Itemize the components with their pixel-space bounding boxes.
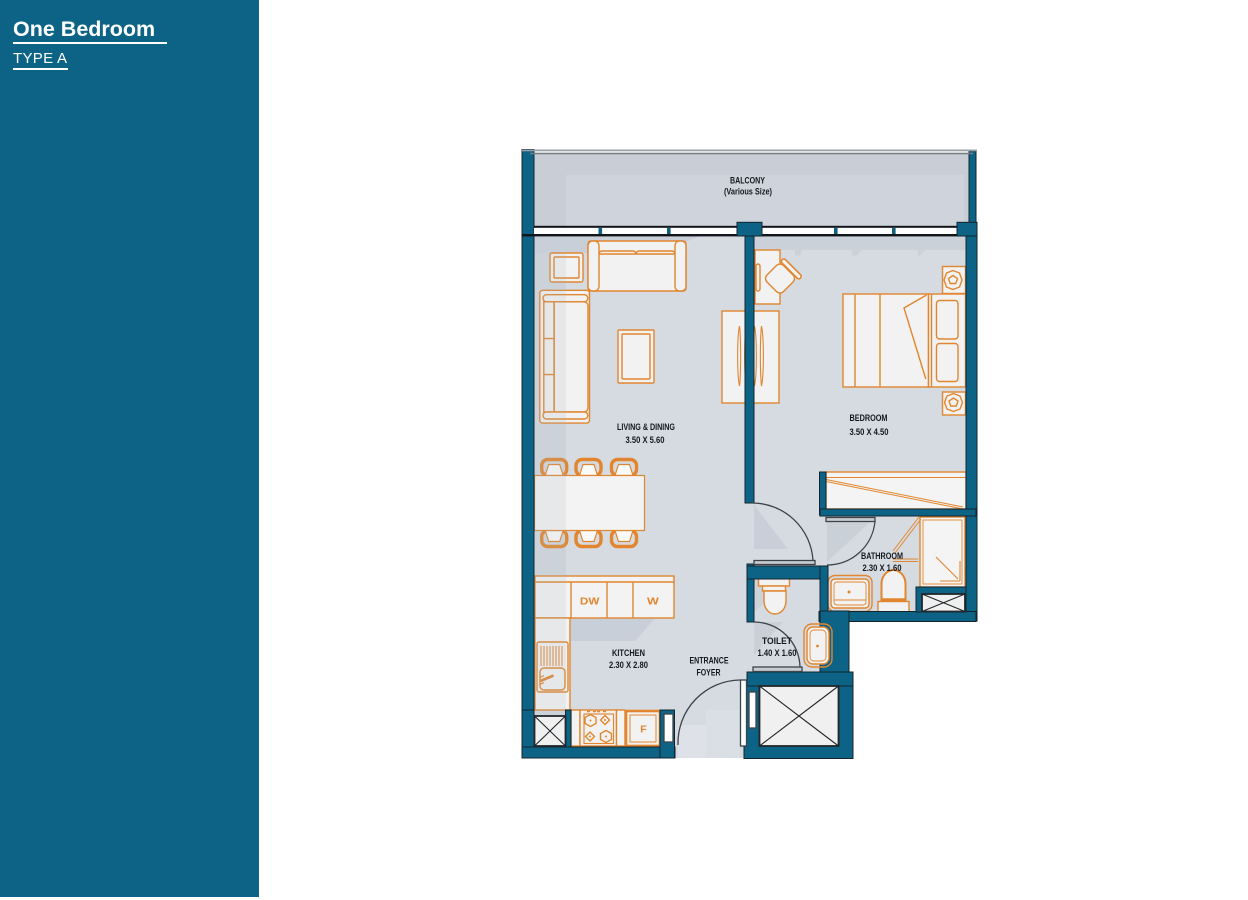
svg-text:3.50 X 4.50: 3.50 X 4.50: [850, 427, 889, 437]
svg-text:BALCONY: BALCONY: [730, 176, 765, 186]
svg-text:DW: DW: [580, 597, 600, 608]
svg-text:2.30 X 1.60: 2.30 X 1.60: [863, 563, 902, 573]
svg-text:W: W: [647, 597, 660, 608]
svg-text:3.50 X 5.60: 3.50 X 5.60: [626, 435, 665, 445]
svg-text:BATHROOM: BATHROOM: [861, 551, 903, 561]
svg-text:TOILET: TOILET: [762, 636, 793, 646]
svg-text:FOYER: FOYER: [697, 668, 721, 678]
svg-text:KITCHEN: KITCHEN: [612, 648, 645, 658]
svg-text:LIVING & DINING: LIVING & DINING: [617, 422, 675, 432]
svg-text:2.30 X 2.80: 2.30 X 2.80: [609, 660, 648, 670]
svg-text:1.40 X 1.60: 1.40 X 1.60: [758, 648, 797, 658]
svg-text:(Various Size): (Various Size): [724, 187, 772, 197]
svg-text:BEDROOM: BEDROOM: [850, 413, 888, 423]
svg-text:ENTRANCE: ENTRANCE: [690, 656, 729, 666]
svg-text:F: F: [640, 724, 647, 736]
